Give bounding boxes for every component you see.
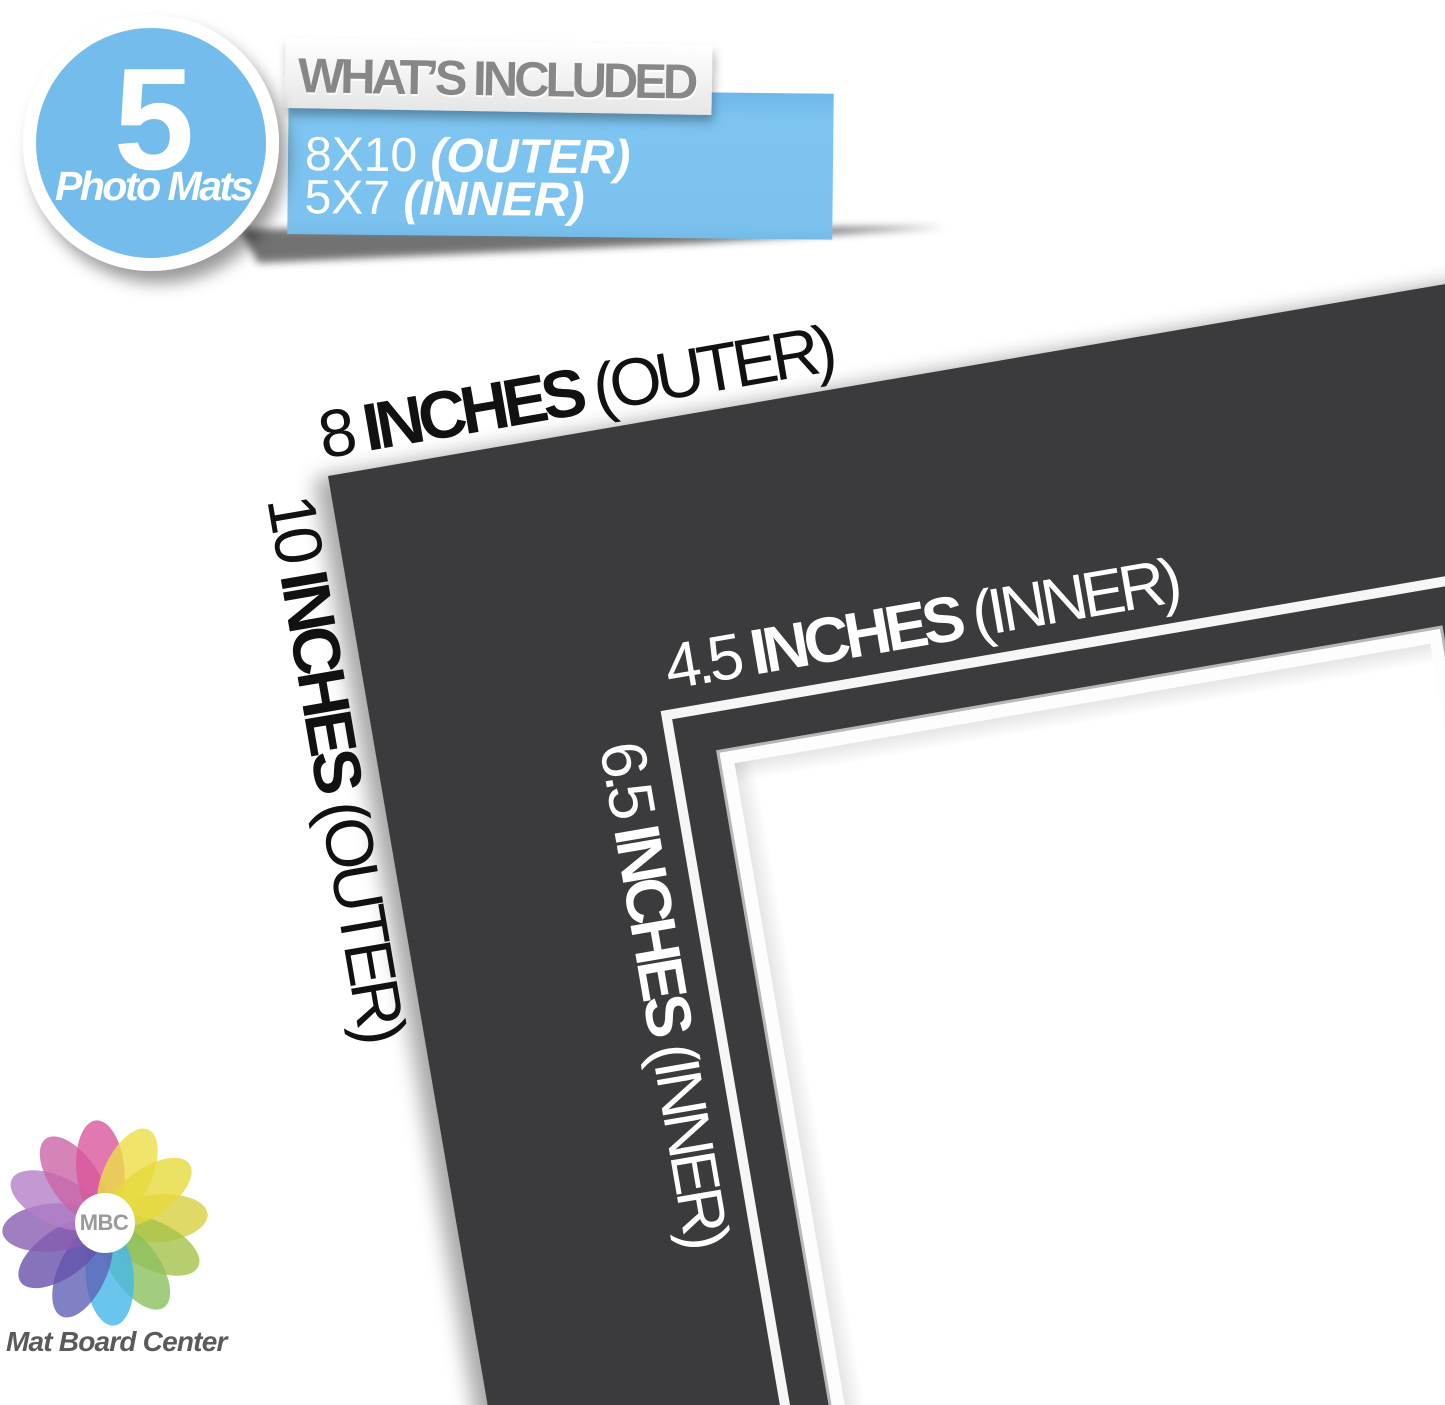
svg-text:Photo Mats: Photo Mats (55, 163, 253, 209)
svg-text:WHAT’S INCLUDED: WHAT’S INCLUDED (298, 49, 698, 110)
svg-text:MBC: MBC (80, 1210, 129, 1235)
svg-text:Mat Board Center: Mat Board Center (6, 1326, 229, 1357)
svg-text:5X7 (INNER): 5X7 (INNER) (304, 171, 585, 227)
